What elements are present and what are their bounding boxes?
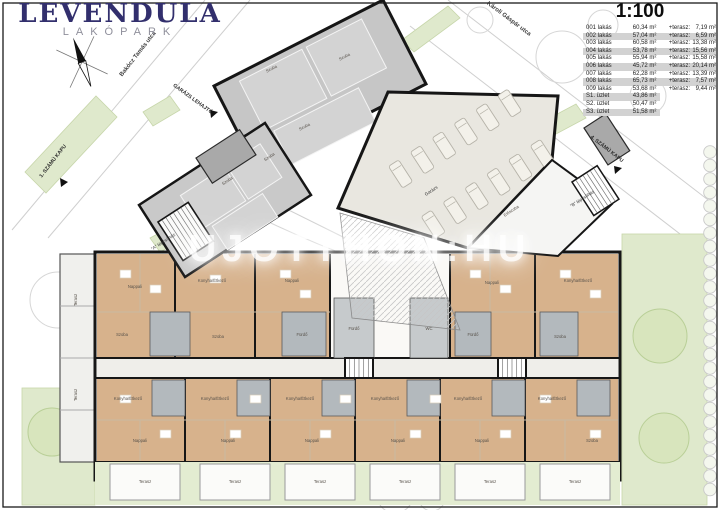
ramp-arrow-icon xyxy=(210,110,218,118)
room-label: Terasz xyxy=(399,479,411,484)
room-label: Szoba xyxy=(554,334,567,339)
room-label: Fürdő xyxy=(349,326,361,331)
area-row: 008 lakás65,73 m²+terasz:7,57 m² xyxy=(583,78,716,86)
room-label: Nappali xyxy=(285,278,299,283)
area-row: 001 lakás60,34 m²+terasz:7,19 m² xyxy=(583,25,716,33)
gate-4-arrow-icon xyxy=(614,166,622,174)
gate-1-arrow-icon xyxy=(60,178,68,187)
tree-icon xyxy=(639,413,689,463)
room-label: Nappali xyxy=(475,438,489,443)
area-table: 001 lakás60,34 m²+terasz:7,19 m²002 laká… xyxy=(583,25,716,116)
area-row: 003 lakás60,58 m²+terasz:13,38 m² xyxy=(583,40,716,48)
room-label: Fürdő xyxy=(468,332,480,337)
area-row: S1. üzlet43,86 m² xyxy=(583,93,716,101)
area-row: 005 lakás55,94 m²+terasz:15,58 m² xyxy=(583,55,716,63)
area-row: 009 lakás53,68 m²+terasz:9,44 m² xyxy=(583,86,716,94)
stair-core xyxy=(498,358,526,378)
room-label: Konyha/Étkező xyxy=(198,278,227,283)
room-label: Terasz xyxy=(314,479,326,484)
stair-core xyxy=(345,358,373,378)
area-row: 006 lakás45,72 m²+terasz:20,14 m² xyxy=(583,63,716,71)
room-label: Nappali xyxy=(391,438,405,443)
floor-plan-page: SzobaSzobaSzobaSzobaSzobaElőszobaNappali… xyxy=(0,0,720,510)
room-label: Konyha/Étkező xyxy=(454,396,483,401)
room-label: Terasz xyxy=(139,479,151,484)
room-label: Nappali xyxy=(221,438,235,443)
room-label: Konyha/Étkező xyxy=(371,396,400,401)
tree-icon xyxy=(633,309,687,363)
room-label: Terasz xyxy=(73,389,78,401)
area-row: S3. üzlet51,58 m² xyxy=(583,109,716,117)
room-label: Szoba xyxy=(116,332,129,337)
area-row: 004 lakás53,78 m²+terasz:15,56 m² xyxy=(583,48,716,56)
area-row: 002 lakás57,04 m²+terasz:6,59 m² xyxy=(583,33,716,41)
compass-icon xyxy=(54,31,109,94)
area-row: 007 lakás62,28 m²+terasz:13,39 m² xyxy=(583,71,716,79)
scale-label: 1:100 xyxy=(585,1,695,23)
room-label: Terasz xyxy=(73,294,78,306)
project-logo: LEVENDULA LAKÓPARK xyxy=(18,0,222,38)
room-label: Szoba xyxy=(212,334,225,339)
room-label: Nappali xyxy=(128,284,142,289)
room-label: Konyha/Étkező xyxy=(114,396,143,401)
terrace-strip xyxy=(95,462,620,505)
room-label: Terasz xyxy=(569,479,581,484)
room-label: Nappali xyxy=(133,438,147,443)
room-label: Konyha/Étkező xyxy=(201,396,230,401)
room-label: Konyha/Étkező xyxy=(564,278,593,283)
room-label: WC xyxy=(426,326,433,331)
room-label: Fürdő xyxy=(297,332,309,337)
room-label: Terasz xyxy=(229,479,241,484)
area-row: S2. üzlet50,47 m² xyxy=(583,101,716,109)
main-floor-band xyxy=(60,252,620,480)
room-label: Konyha/Étkező xyxy=(286,396,315,401)
room-label: Nappali xyxy=(305,438,319,443)
logo-title: LEVENDULA xyxy=(18,0,222,28)
room-label: Terasz xyxy=(484,479,496,484)
room-label: Konyha/Étkező xyxy=(538,396,567,401)
room-label: Szoba xyxy=(586,438,599,443)
room-label: Nappali xyxy=(485,280,499,285)
